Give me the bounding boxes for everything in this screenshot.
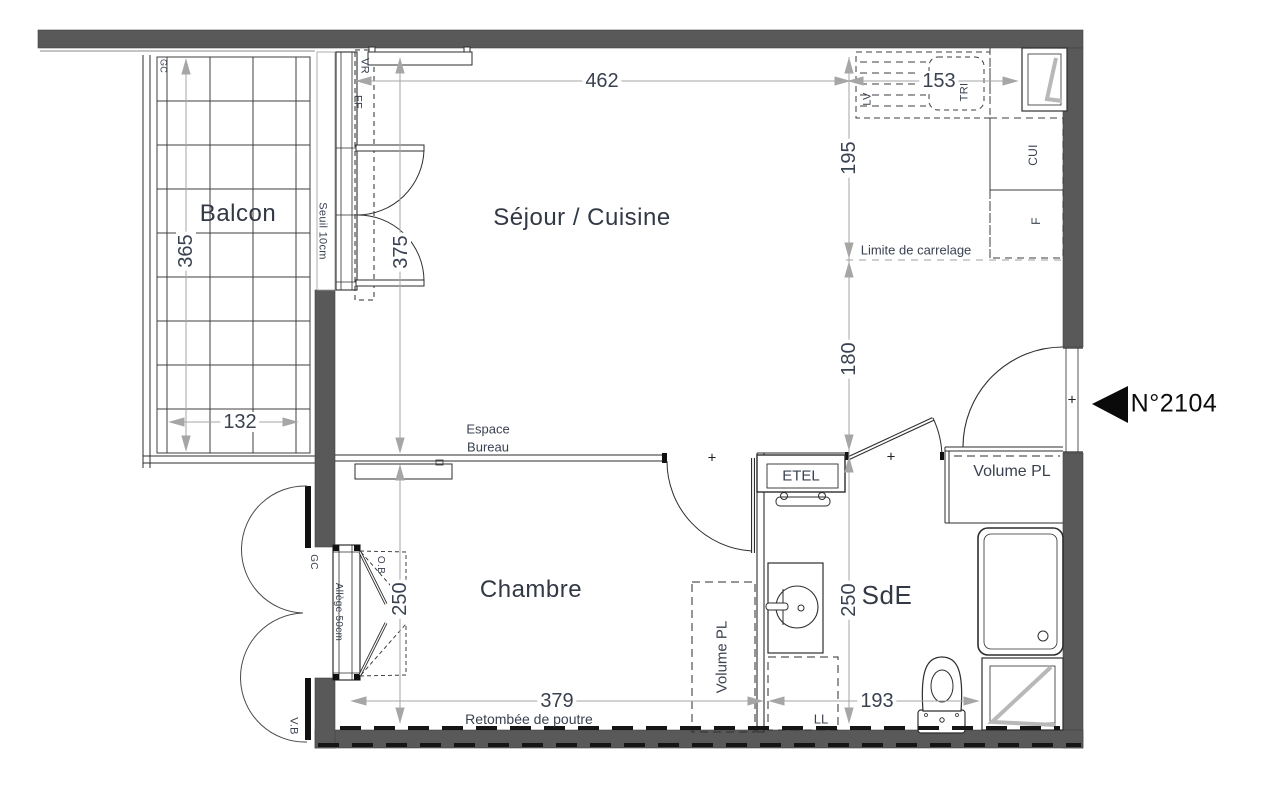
sorting-bin-label: TRI [960,83,971,102]
roller-shutter-label: VR [359,58,370,74]
bedroom-door-swing [667,461,752,551]
unit-number: N°2104 [1131,392,1218,417]
desk-label-line2: Bureau [467,441,509,454]
fridge-box [990,190,1063,258]
shutter-leaf-upper [305,486,311,548]
room-label-bedroom: Chambre [480,578,582,602]
roller-shutter-box [355,50,374,300]
dim-tiling-to-wall: 180 [839,339,859,378]
dim-bedroom-width: 379 [537,691,576,711]
walls [38,30,1083,748]
room-label-balcony: Balcon [200,202,276,226]
dishwasher-label: LV [863,92,874,105]
beam-label: Retombée de poutre [463,712,595,726]
door-axis-mark-entry: + [1068,393,1077,408]
fridge-label: F [1030,217,1042,225]
dim-balcony-width: 132 [220,412,259,432]
entrance-arrow-icon [1092,386,1128,423]
door-axis-mark-shower-room: + [887,450,896,465]
dim-kitchen-depth: 195 [839,138,859,177]
room-label-living-kitchen: Séjour / Cuisine [493,206,670,230]
dimension-lines [170,57,1017,723]
floor-plan: Balcon Séjour / Cuisine Chambre SdE N°21… [0,0,1286,800]
entry-closet-label: Volume PL [973,464,1050,480]
bedroom-closet-label: Volume PL [715,621,730,694]
sill-label: Allège 50cm [333,583,343,641]
shower-drain [1038,631,1048,641]
threshold-label: Seuil 10cm [317,202,328,259]
dim-living-depth: 375 [391,232,411,271]
dim-shower-room-width: 193 [857,691,896,711]
fixed-frame-label: FF [352,95,363,109]
dim-bedroom-depth: 250 [390,579,410,618]
swing-shutter-label: V.B [288,717,299,735]
dim-kitchen-counter: 153 [919,71,958,91]
guardrail-balcony-label: GC [159,59,168,73]
entry-closet [945,447,1063,523]
dim-balcony-depth: 365 [176,231,196,270]
shutter-swing-upper [241,486,307,613]
washing-machine-label: LL [814,713,828,726]
dim-living-width: 462 [582,71,621,91]
floor-plan-linework [0,0,1286,800]
room-label-shower-room: SdE [862,582,913,608]
towel-radiator [776,497,830,506]
guardrail-window-label: GC [308,554,318,570]
toilet-bowl [922,657,961,711]
tiling-limit-label: Limite de carrelage [861,244,972,257]
casement-label: O.B [375,556,385,574]
window-top-right [1022,48,1067,111]
bedroom-partition [335,453,753,553]
window-bottom-right [982,658,1063,730]
electrical-panel-label: ETEL [782,469,820,484]
desk-label-line1: Espace [466,423,509,436]
shower-tray [978,528,1063,655]
radiator [368,47,472,65]
entry-door-swing [963,347,1063,447]
wall-left-mid [315,290,335,547]
wall-right-lower [1063,453,1083,748]
dim-shower-room-depth: 250 [839,580,859,619]
wall-top [38,30,1083,48]
shutter-leaf-lower [305,678,311,740]
wall-left-low [315,678,335,748]
faucet [766,603,788,610]
door-axis-mark-bedroom: + [708,451,717,466]
entry-door [963,347,1083,452]
kitchen-unit-label: CUI [1027,144,1039,166]
